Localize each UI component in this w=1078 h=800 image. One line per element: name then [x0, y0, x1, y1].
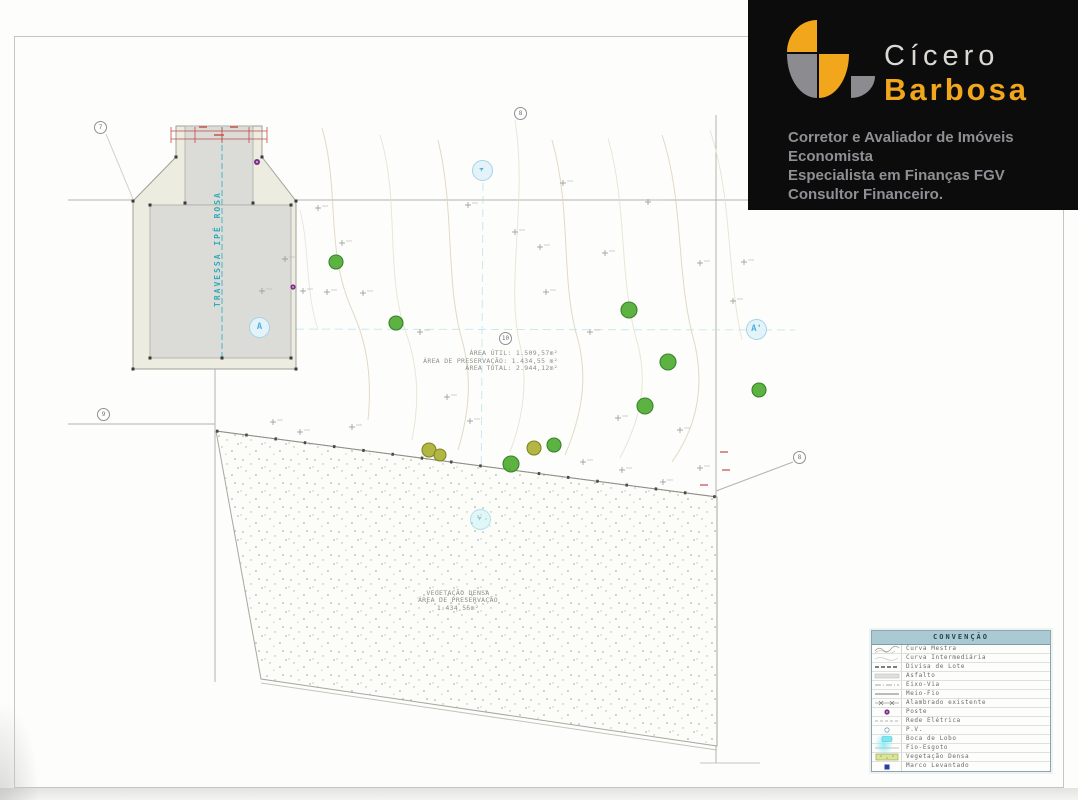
- survey-marker-icon: [872, 762, 902, 771]
- vertex-node-10: 10: [499, 332, 512, 345]
- section-arrow-icon: ➤: [476, 161, 490, 180]
- preservation-area-label: VEGETAÇÃO DENSA ÁREA DE PRESERVAÇÃO 1.43…: [398, 590, 518, 612]
- tagline: Consultor Financeiro.: [788, 185, 1070, 204]
- legend-label: Eixo-Via: [902, 681, 1050, 689]
- section-arrow-icon: ➤: [474, 510, 488, 529]
- legend-label: Vegetação Densa: [902, 753, 1050, 761]
- scanned-site-plan-page: TRAVESSA IPÊ ROSA ÁREA ÚTIL: 1.509,57m² …: [0, 0, 1078, 800]
- storm-drain-icon: [872, 735, 902, 743]
- section-marker-bottom: ➤: [470, 509, 491, 530]
- asphalt-icon: [872, 672, 902, 680]
- curb-icon: [872, 690, 902, 698]
- section-marker-a-prime: A': [746, 319, 767, 340]
- road-axis-icon: [872, 681, 902, 689]
- legend-row: Alambrado existente: [872, 699, 1050, 708]
- logo-taglines: Corretor e Avaliador de Imóveis Economis…: [788, 128, 1070, 204]
- area-summary: ÁREA ÚTIL: 1.509,57m² ÁREA DE PRESERVAÇÃ…: [398, 350, 558, 373]
- pole-icon: [872, 708, 902, 716]
- logo-name-last: Barbosa: [884, 72, 1029, 108]
- legend-label: Curva Intermediária: [902, 654, 1050, 662]
- legend-label: Fio-Esgoto: [902, 744, 1050, 752]
- legend-label: Asfalto: [902, 672, 1050, 680]
- legend-row: Poste: [872, 708, 1050, 717]
- legend-row: Fio-Esgoto: [872, 744, 1050, 753]
- vertex-node-8-top: 8: [514, 107, 527, 120]
- contour-intermediate-icon: [872, 654, 902, 662]
- legend-box: CONVENÇÃO Curva Mestra Curva Intermediár…: [871, 630, 1051, 772]
- legend-row: Curva Mestra: [872, 645, 1050, 654]
- sewer-line-icon: [872, 744, 902, 752]
- street-name-label: TRAVESSA IPÊ ROSA: [213, 163, 229, 335]
- section-marker-top: ➤: [472, 160, 493, 181]
- contour-lines: [300, 120, 742, 462]
- legend-row: Marco Levantado: [872, 762, 1050, 771]
- legend-label: Divisa de Lote: [902, 663, 1050, 671]
- legend-label: Rede Elétrica: [902, 717, 1050, 725]
- legend-label: Poste: [902, 708, 1050, 716]
- legend-row: Eixo-Via: [872, 681, 1050, 690]
- vertex-node-8-right: 8: [793, 451, 806, 464]
- legend-row: Boca de Lobo: [872, 735, 1050, 744]
- vertex-node-7: 7: [94, 121, 107, 134]
- dense-vegetation-icon: [872, 753, 902, 761]
- legend-row: Divisa de Lote: [872, 663, 1050, 672]
- vertex-node-9: 9: [97, 408, 110, 421]
- legend-row: P.V.: [872, 726, 1050, 735]
- legend-row: Curva Intermediária: [872, 654, 1050, 663]
- tagline: Corretor e Avaliador de Imóveis: [788, 128, 1070, 147]
- legend-label: P.V.: [902, 726, 1050, 734]
- logo-name-first: Cícero: [884, 40, 999, 73]
- legend-label: Boca de Lobo: [902, 735, 1050, 743]
- legend-label: Meio-Fio: [902, 690, 1050, 698]
- legend-row: Vegetação Densa: [872, 753, 1050, 762]
- legend-row: Meio-Fio: [872, 690, 1050, 699]
- legend-row: Asfalto: [872, 672, 1050, 681]
- power-line-icon: [872, 717, 902, 725]
- legend-row: Rede Elétrica: [872, 717, 1050, 726]
- tagline: Economista: [788, 147, 1070, 166]
- legend-label: Curva Mestra: [902, 645, 1050, 653]
- tagline: Especialista em Finanças FGV: [788, 166, 1070, 185]
- contour-major-icon: [872, 645, 902, 653]
- section-marker-a: A: [249, 317, 270, 338]
- lot-boundary-icon: [872, 663, 902, 671]
- fence-icon: [872, 699, 902, 707]
- legend-label: Marco Levantado: [902, 762, 1050, 771]
- legend-title: CONVENÇÃO: [872, 631, 1050, 645]
- manhole-icon: [872, 726, 902, 734]
- area-total-line: ÁREA TOTAL: 2.944,12m²: [398, 365, 558, 373]
- legend-label: Alambrado existente: [902, 699, 1050, 707]
